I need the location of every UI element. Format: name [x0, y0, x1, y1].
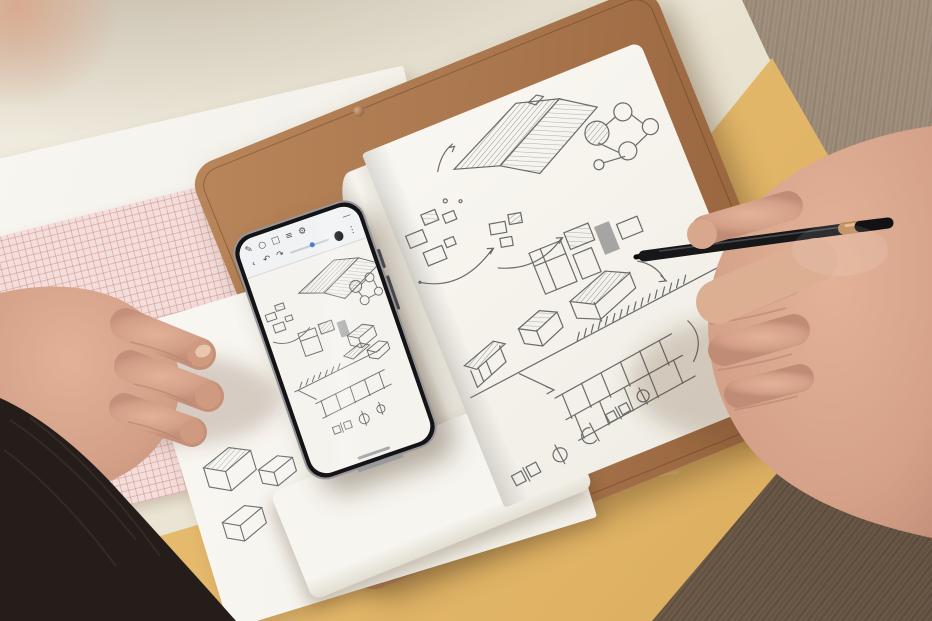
home-indicator[interactable] — [357, 446, 390, 460]
more-icon[interactable]: ⋮ — [347, 225, 358, 236]
undo-icon[interactable]: ↶ — [262, 255, 272, 266]
knuckle-highlight — [792, 224, 888, 276]
roof-isometric-sketch — [425, 76, 612, 209]
lasso-icon[interactable]: ○ — [257, 240, 267, 251]
eraser-icon[interactable]: □ — [270, 236, 281, 247]
layers-icon[interactable]: ≡ — [284, 231, 294, 242]
index-fingertip — [687, 219, 717, 249]
skin-edge-top-left — [0, 0, 136, 104]
stroke-slider-knob[interactable] — [309, 241, 315, 247]
pen-icon[interactable]: ✎ — [244, 245, 254, 256]
minimize-icon[interactable]: — — [341, 211, 352, 222]
photo-desk-scene: ✎ ○ □ ≡ ⚙ — ‹ ↶ ↷ ⋮ — [0, 0, 932, 621]
toolbar-spacer — [312, 220, 337, 229]
right-hand-group — [590, 110, 932, 580]
plan-cluster-2-sketch — [480, 195, 568, 275]
settings-icon[interactable]: ⚙ — [297, 227, 308, 238]
back-icon[interactable]: ‹ — [249, 259, 259, 270]
color-swatch-black[interactable] — [332, 230, 344, 242]
redo-icon[interactable]: ↷ — [275, 250, 285, 261]
